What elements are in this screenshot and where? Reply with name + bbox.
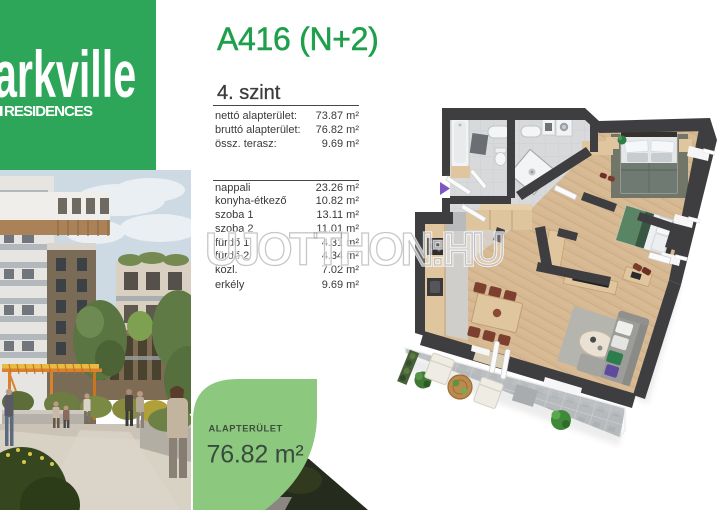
svg-text:UJOTTHON:HU: UJOTTHON:HU (205, 223, 507, 275)
svg-text:RESIDENCES: RESIDENCES (4, 103, 93, 120)
svg-text:ALAPTERÜLET: ALAPTERÜLET (209, 424, 283, 434)
svg-text:76.82 m²: 76.82 m² (207, 441, 304, 469)
svg-text:arkville: arkville (0, 37, 136, 111)
